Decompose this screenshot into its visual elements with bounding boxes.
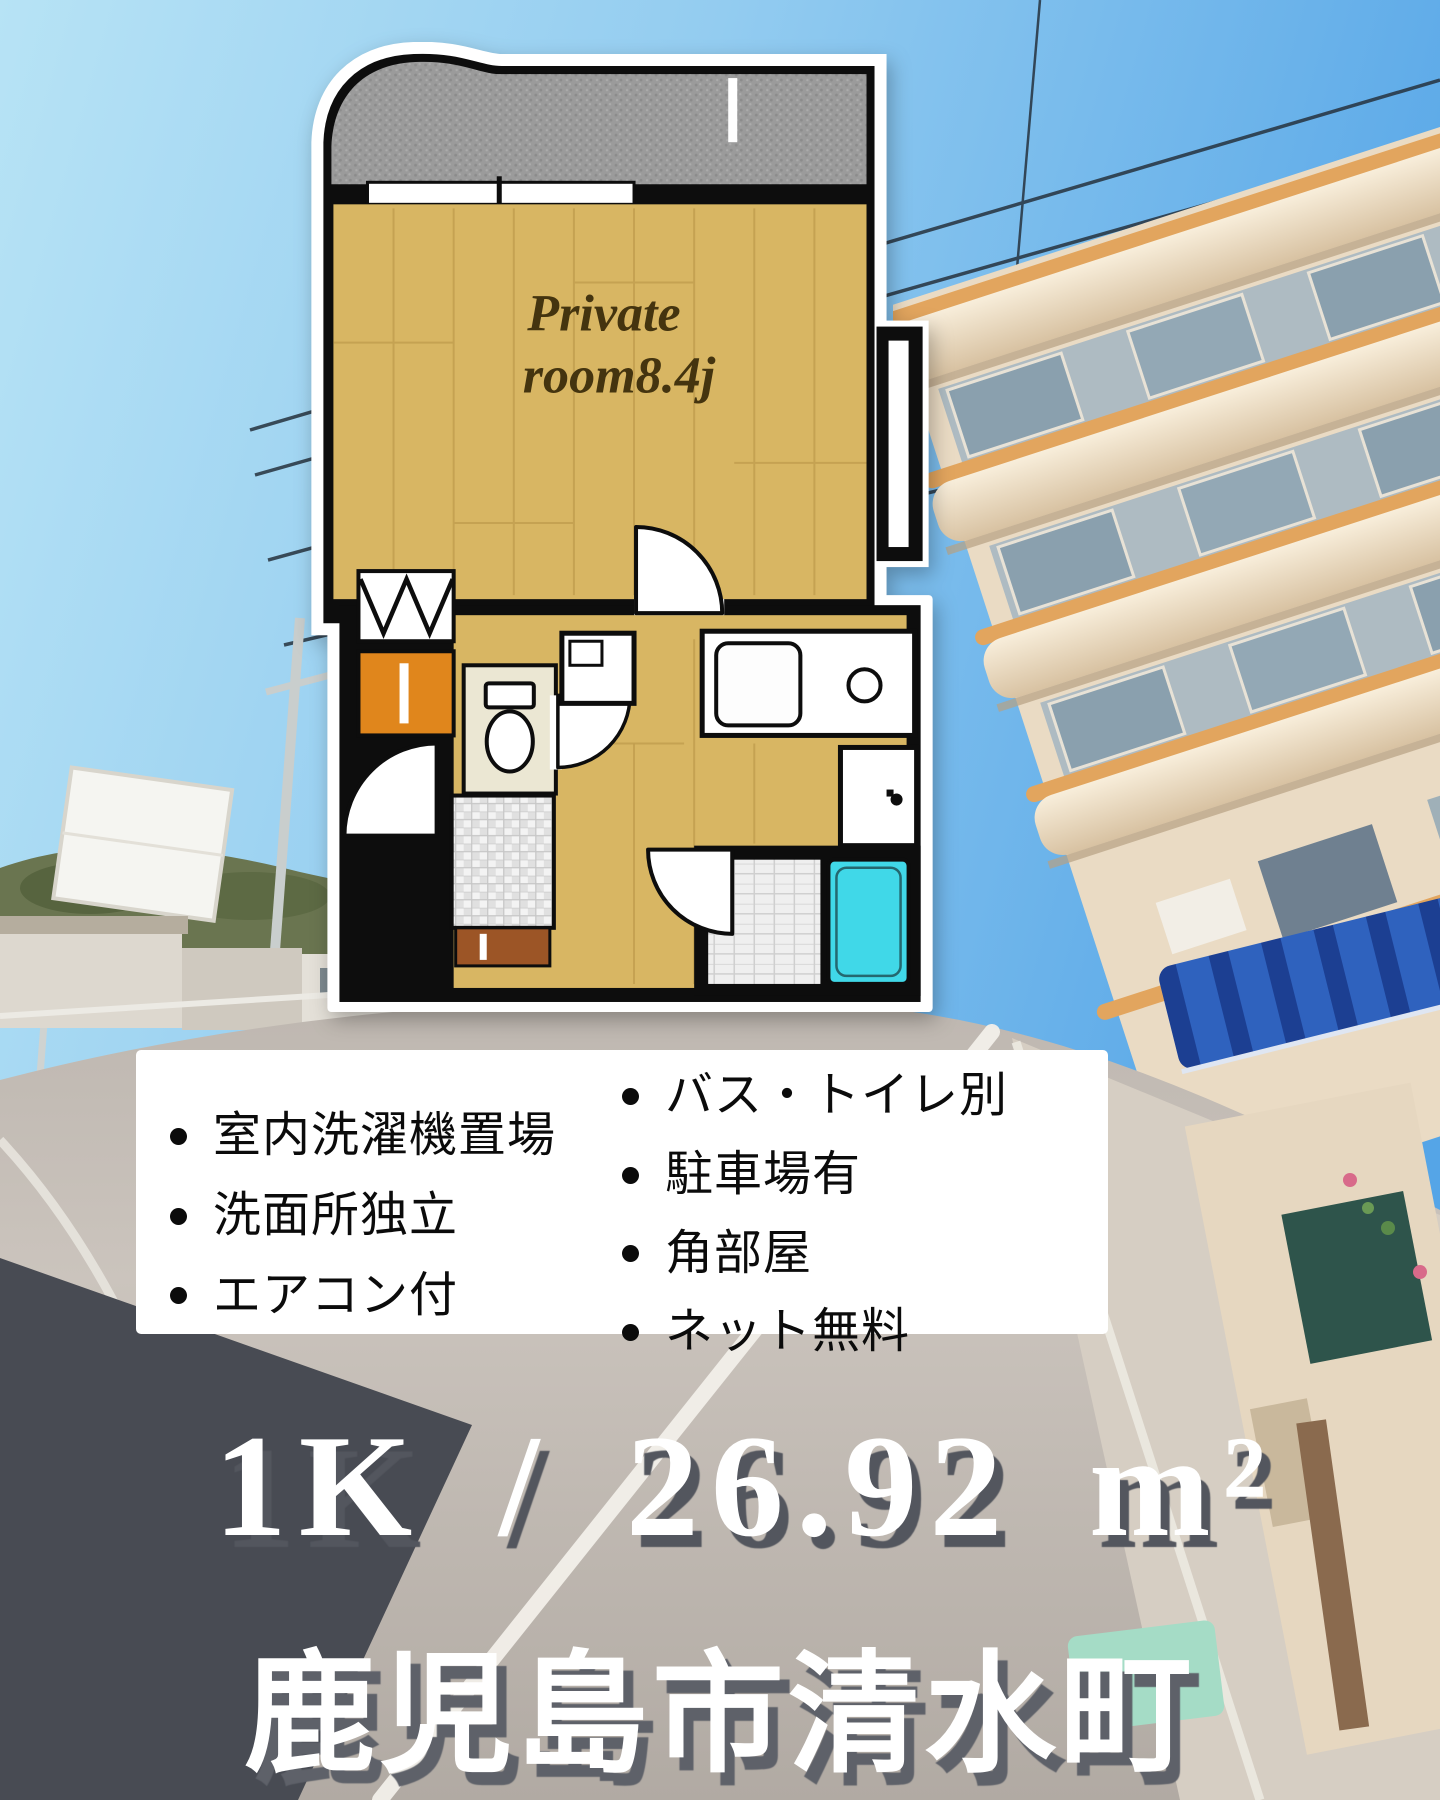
entrance-step: [456, 928, 550, 966]
feature-item: エアコン付: [170, 1270, 600, 1323]
feature-label: バス・トイレ別: [665, 1070, 1008, 1123]
room-label: Private: [526, 286, 680, 343]
bullet-icon: [170, 1128, 187, 1145]
washroom-tiles: [452, 796, 554, 928]
kitchen-sink: [716, 643, 800, 725]
feature-label: 室内洗濯機置場: [213, 1110, 556, 1163]
feature-column-left: 室内洗濯機置場 洗面所独立 エアコン付: [170, 1110, 600, 1334]
feature-item: 角部屋: [622, 1228, 1082, 1281]
floor-plan: Private room8.4j: [303, 42, 935, 1014]
bullet-icon: [622, 1088, 639, 1105]
bullet-icon: [622, 1245, 639, 1262]
feature-item: 室内洗濯機置場: [170, 1110, 600, 1163]
balcony-divider-mark: [728, 78, 737, 142]
feature-item: ネット無料: [622, 1306, 1082, 1359]
bullet-icon: [622, 1324, 639, 1341]
feature-label: 洗面所独立: [213, 1190, 458, 1243]
side-window: [889, 341, 909, 547]
main-room: Private room8.4j: [333, 204, 866, 599]
feature-item: 駐車場有: [622, 1149, 1082, 1202]
feature-label: 駐車場有: [665, 1149, 861, 1202]
bullet-icon: [170, 1208, 187, 1225]
feature-column-right: バス・トイレ別 駐車場有 角部屋 ネット無料: [622, 1070, 1082, 1334]
feature-label: ネット無料: [665, 1306, 910, 1359]
toilet-icon: [486, 683, 534, 771]
billboard-sign: [53, 767, 232, 920]
balcony: [331, 62, 866, 184]
bullet-icon: [622, 1167, 639, 1184]
feature-item: 洗面所独立: [170, 1190, 600, 1243]
bullet-icon: [170, 1287, 187, 1304]
room-label: room8.4j: [523, 348, 716, 405]
kitchen-counter: [702, 631, 914, 735]
feature-card: 室内洗濯機置場 洗面所独立 エアコン付 バス・トイレ別 駐車場有 角部屋 ネット…: [136, 1050, 1108, 1334]
closet: [358, 571, 453, 641]
feature-label: エアコン付: [213, 1270, 458, 1323]
feature-item: バス・トイレ別: [622, 1070, 1082, 1123]
washbasin-unit: [840, 747, 916, 845]
spec-line: 1K / 26.92 m²: [0, 1402, 1440, 1570]
entrance-porch: [358, 651, 453, 735]
washer-pan: [562, 633, 634, 703]
bathtub: [828, 860, 908, 984]
feature-label: 角部屋: [665, 1228, 812, 1281]
stove-burner: [848, 669, 880, 701]
location-line: 鹿児島市清水町: [0, 1608, 1440, 1799]
